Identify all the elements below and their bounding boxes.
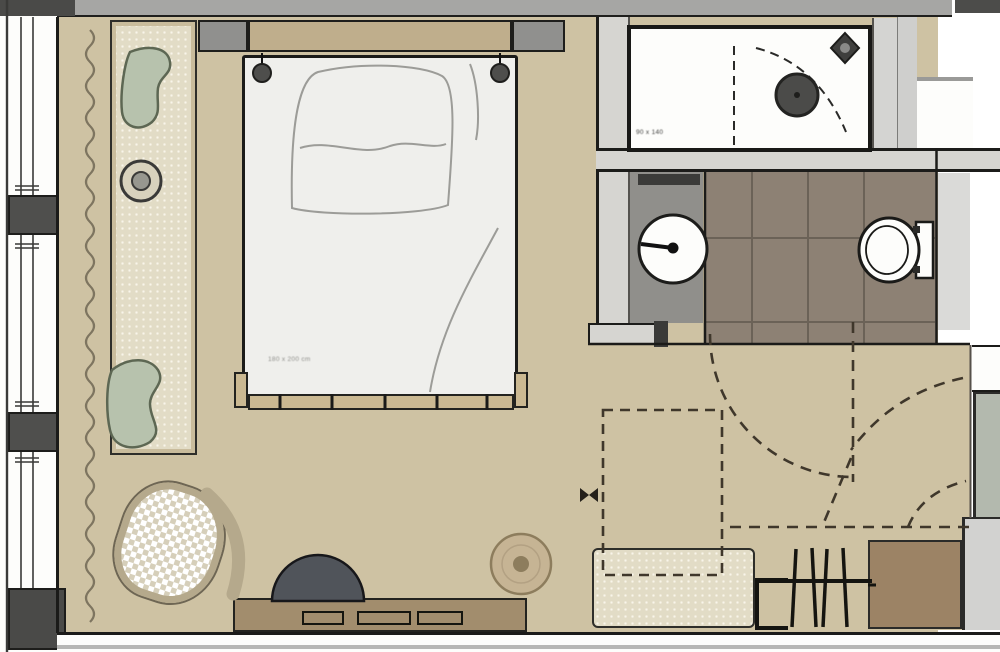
desk-console [233,598,527,632]
window-pier-lower [8,412,58,452]
top-left-wall-block [0,0,75,16]
entry-door-opening [971,345,1000,391]
bed-mattress [242,55,518,397]
bathroom-left-wall [596,17,630,345]
daybed-bench [110,20,197,455]
shaft-window-box [917,77,973,153]
entry-corner-wall [962,517,1000,630]
entry-side-wall-green [973,392,1000,517]
toilet-back-wall [938,173,970,330]
bathroom-tile-floor [705,172,936,344]
window-wall [0,16,57,652]
top-right-dark-block [955,0,1000,13]
bed-size-label: 180 x 200 cm [268,356,311,363]
headboard [248,20,512,52]
vanity-shelf [638,174,700,185]
top-wall [35,0,952,17]
bottom-wall-stripe [57,645,1000,649]
luggage-bench [592,548,755,628]
window-pier-upper [8,195,58,235]
bed-post-left [234,372,248,408]
shower-tray [627,25,872,152]
bed-post-right [514,372,528,408]
bed-foot-rail [248,394,514,410]
floor-plan: 180 x 200 cm 90 x 140 [0,0,1000,652]
vanity-wall-cap [654,321,668,347]
nightstand-right [512,20,565,52]
bottom-wall [57,632,1000,652]
shower-size-label: 90 x 140 [636,129,663,136]
nightstand-left [198,20,248,52]
minibar-cabinet [868,540,962,629]
vanity-counter [630,172,703,323]
